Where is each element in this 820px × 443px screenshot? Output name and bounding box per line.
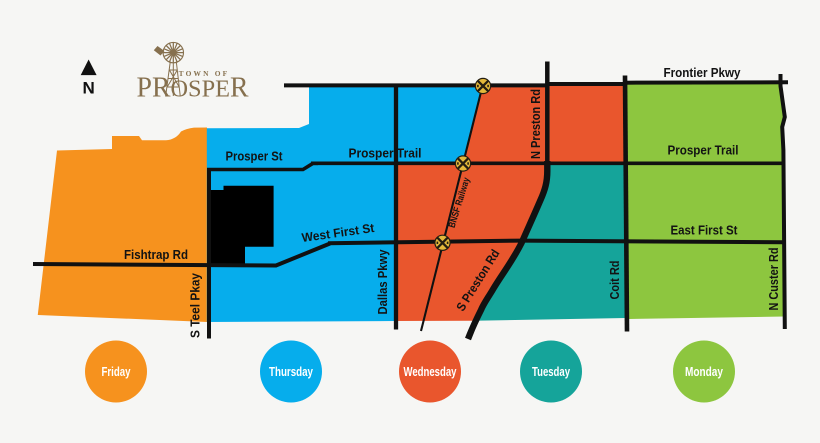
svg-text:Tuesday: Tuesday: [532, 364, 571, 379]
svg-text:Dallas Pkwy: Dallas Pkwy: [376, 249, 390, 314]
svg-text:Prosper Trail: Prosper Trail: [349, 147, 422, 161]
svg-text:Coit Rd: Coit Rd: [608, 261, 622, 300]
svg-text:Fishtrap Rd: Fishtrap Rd: [124, 248, 188, 262]
svg-text:Friday: Friday: [102, 364, 132, 379]
svg-text:Monday: Monday: [685, 364, 724, 379]
svg-text:S Teel Pkay: S Teel Pkay: [189, 273, 203, 338]
svg-text:N Preston Rd: N Preston Rd: [529, 89, 543, 159]
svg-text:Frontier Pkwy: Frontier Pkwy: [664, 66, 741, 80]
svg-text:East First St: East First St: [671, 224, 739, 238]
svg-text:Prosper St: Prosper St: [226, 150, 284, 164]
svg-text:N Custer Rd: N Custer Rd: [767, 248, 781, 311]
svg-text:Thursday: Thursday: [269, 364, 314, 379]
svg-text:Prosper Trail: Prosper Trail: [668, 144, 739, 158]
svg-text:N: N: [82, 79, 94, 98]
svg-text:PROSPER: PROSPER: [137, 73, 249, 104]
svg-text:Wednesday: Wednesday: [404, 364, 458, 379]
